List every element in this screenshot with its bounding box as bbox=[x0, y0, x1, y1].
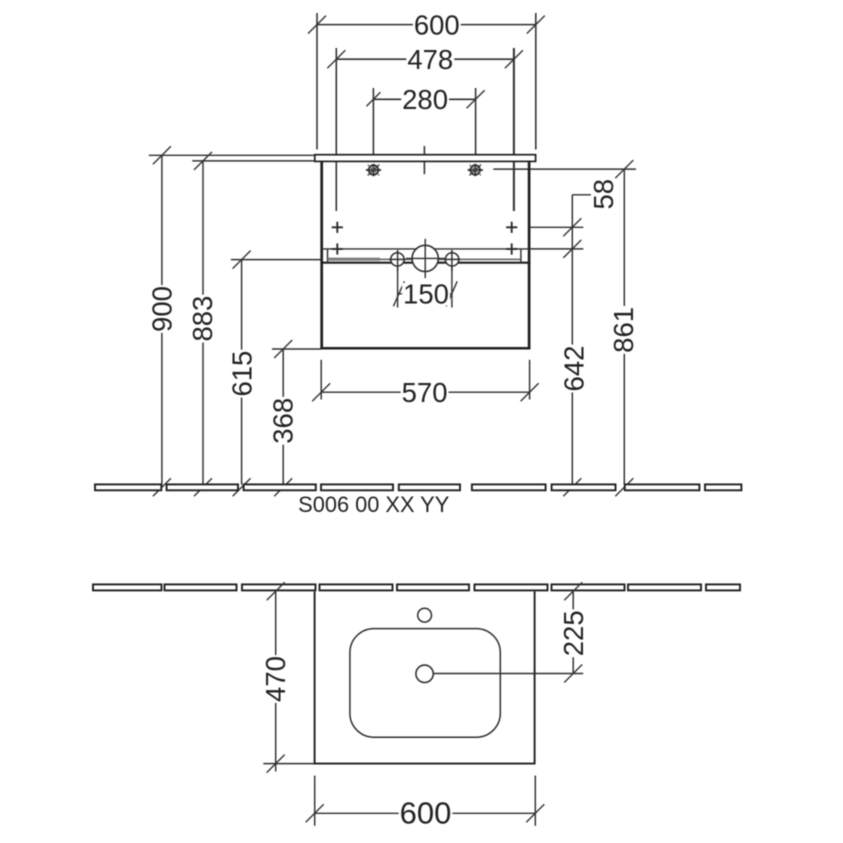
svg-text:570: 570 bbox=[402, 377, 448, 408]
svg-text:S006 00 XX YY: S006 00 XX YY bbox=[298, 492, 450, 517]
svg-text:600: 600 bbox=[400, 796, 452, 831]
svg-text:478: 478 bbox=[407, 44, 453, 75]
svg-text:642: 642 bbox=[559, 346, 590, 392]
svg-text:861: 861 bbox=[608, 307, 639, 353]
svg-text:150: 150 bbox=[403, 279, 449, 310]
svg-text:470: 470 bbox=[260, 656, 291, 702]
svg-text:280: 280 bbox=[402, 84, 448, 115]
svg-text:225: 225 bbox=[558, 610, 589, 656]
svg-text:883: 883 bbox=[187, 296, 218, 342]
svg-text:368: 368 bbox=[268, 398, 299, 444]
svg-text:615: 615 bbox=[227, 351, 258, 397]
svg-text:58: 58 bbox=[588, 179, 619, 210]
svg-text:900: 900 bbox=[146, 286, 177, 332]
svg-text:600: 600 bbox=[414, 10, 460, 41]
